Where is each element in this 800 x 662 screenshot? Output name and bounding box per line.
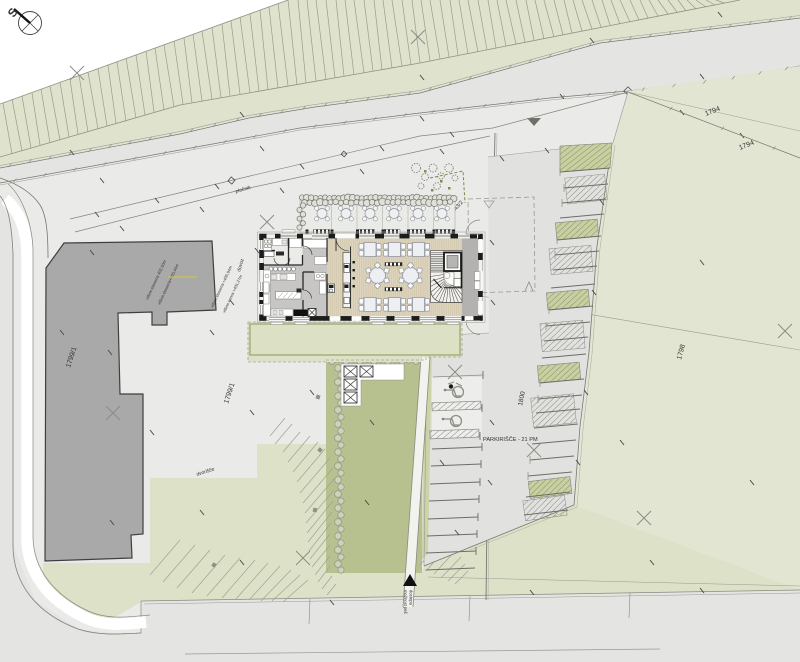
svg-text:možnost peš: možnost peš (403, 590, 408, 614)
svg-text:PARKIRIŠČE - 21 PM: PARKIRIŠČE - 21 PM (483, 436, 538, 443)
svg-text:dostopa: dostopa (409, 590, 414, 606)
